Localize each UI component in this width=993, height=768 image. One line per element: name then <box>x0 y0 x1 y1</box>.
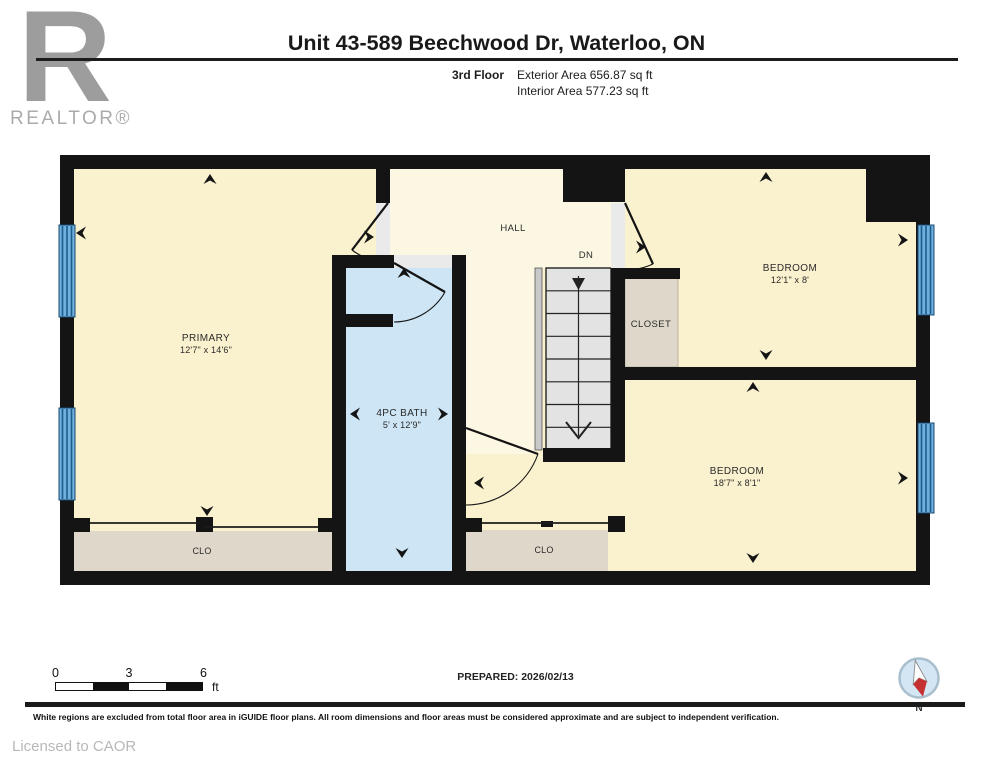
footer-divider <box>25 702 965 707</box>
floorplan-svg: HALL DN PRIMARY 12'7" x 14'6" 4PC BATH 5… <box>0 0 993 768</box>
scale-bar-segments <box>55 682 203 691</box>
corridor-fill <box>466 268 536 454</box>
window-left-2 <box>59 408 75 500</box>
window-right-1 <box>918 225 934 315</box>
bedroom1-label: BEDROOM <box>763 263 817 274</box>
clo2-label: CLO <box>534 545 553 555</box>
stairs <box>535 268 611 450</box>
disclaimer-text: White regions are excluded from total fl… <box>33 712 968 722</box>
bath-room-dims: 5' x 12'9" <box>383 420 421 430</box>
floorplan-page: R REALTOR® Unit 43-589 Beechwood Dr, Wat… <box>0 0 993 768</box>
bedroom2-dims: 18'7" x 8'1" <box>714 478 761 488</box>
primary-room-label: PRIMARY <box>182 333 230 344</box>
prepared-date: PREPARED: 2026/02/13 <box>19 671 993 683</box>
clo1-label: CLO <box>192 546 211 556</box>
stairs-dn-label: DN <box>579 250 594 261</box>
closet-label: CLOSET <box>631 319 671 330</box>
window-right-2 <box>918 423 934 513</box>
window-left-1 <box>59 225 75 317</box>
primary-room-dims: 12'7" x 14'6" <box>180 345 232 355</box>
bedroom2-label: BEDROOM <box>710 466 764 477</box>
licensed-to-text: Licensed to CAOR <box>12 738 136 755</box>
hall-label: HALL <box>500 223 525 234</box>
bedroom1-dims: 12'1" x 8' <box>771 275 809 285</box>
bath-room-label: 4PC BATH <box>376 408 427 419</box>
